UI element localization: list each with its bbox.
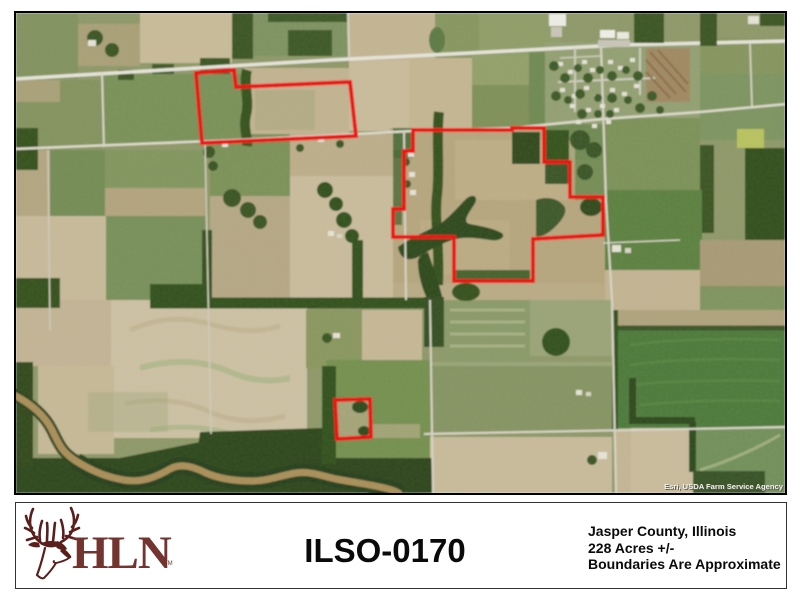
svg-text:Esri, USDA Farm Service Agency: Esri, USDA Farm Service Agency — [664, 482, 784, 491]
